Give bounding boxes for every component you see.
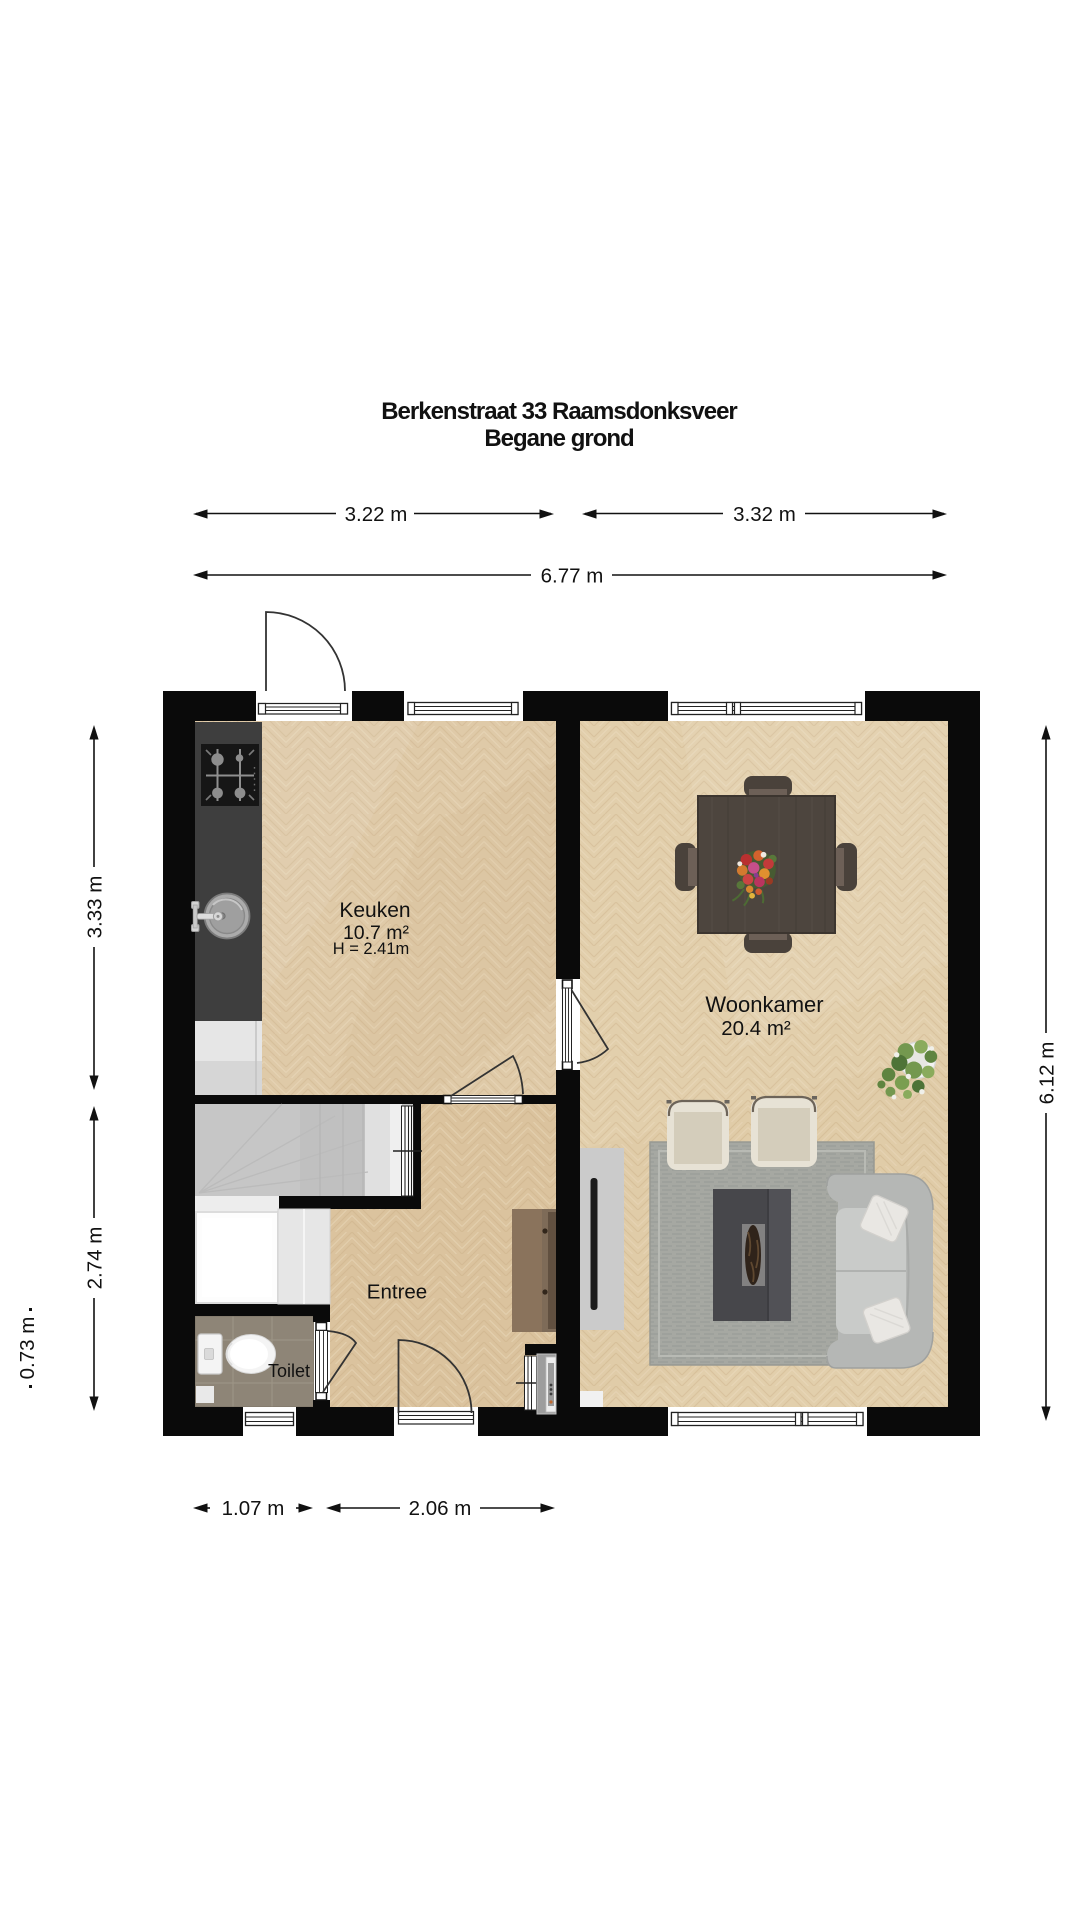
svg-text:Keuken: Keuken (339, 899, 410, 922)
svg-text:Begane grond: Begane grond (484, 425, 634, 452)
svg-text:H = 2.41m: H = 2.41m (333, 940, 410, 958)
svg-text:3.32 m: 3.32 m (733, 503, 796, 526)
svg-text:20.4 m²: 20.4 m² (721, 1017, 791, 1040)
svg-text:0.73 m: 0.73 m (16, 1317, 39, 1380)
svg-text:3.33 m: 3.33 m (84, 876, 107, 939)
svg-text:1.07 m: 1.07 m (222, 1497, 285, 1520)
svg-text:2.74 m: 2.74 m (84, 1227, 107, 1290)
svg-text:Toilet: Toilet (268, 1361, 310, 1381)
svg-text:3.22 m: 3.22 m (345, 503, 408, 526)
svg-text:Entree: Entree (367, 1281, 427, 1304)
svg-text:6.12 m: 6.12 m (1036, 1042, 1059, 1105)
svg-text:2.06 m: 2.06 m (409, 1497, 472, 1520)
svg-text:6.77 m: 6.77 m (541, 565, 604, 588)
svg-text:Berkenstraat 33 Raamsdonksveer: Berkenstraat 33 Raamsdonksveer (381, 398, 737, 425)
svg-text:Woonkamer: Woonkamer (705, 992, 823, 1017)
